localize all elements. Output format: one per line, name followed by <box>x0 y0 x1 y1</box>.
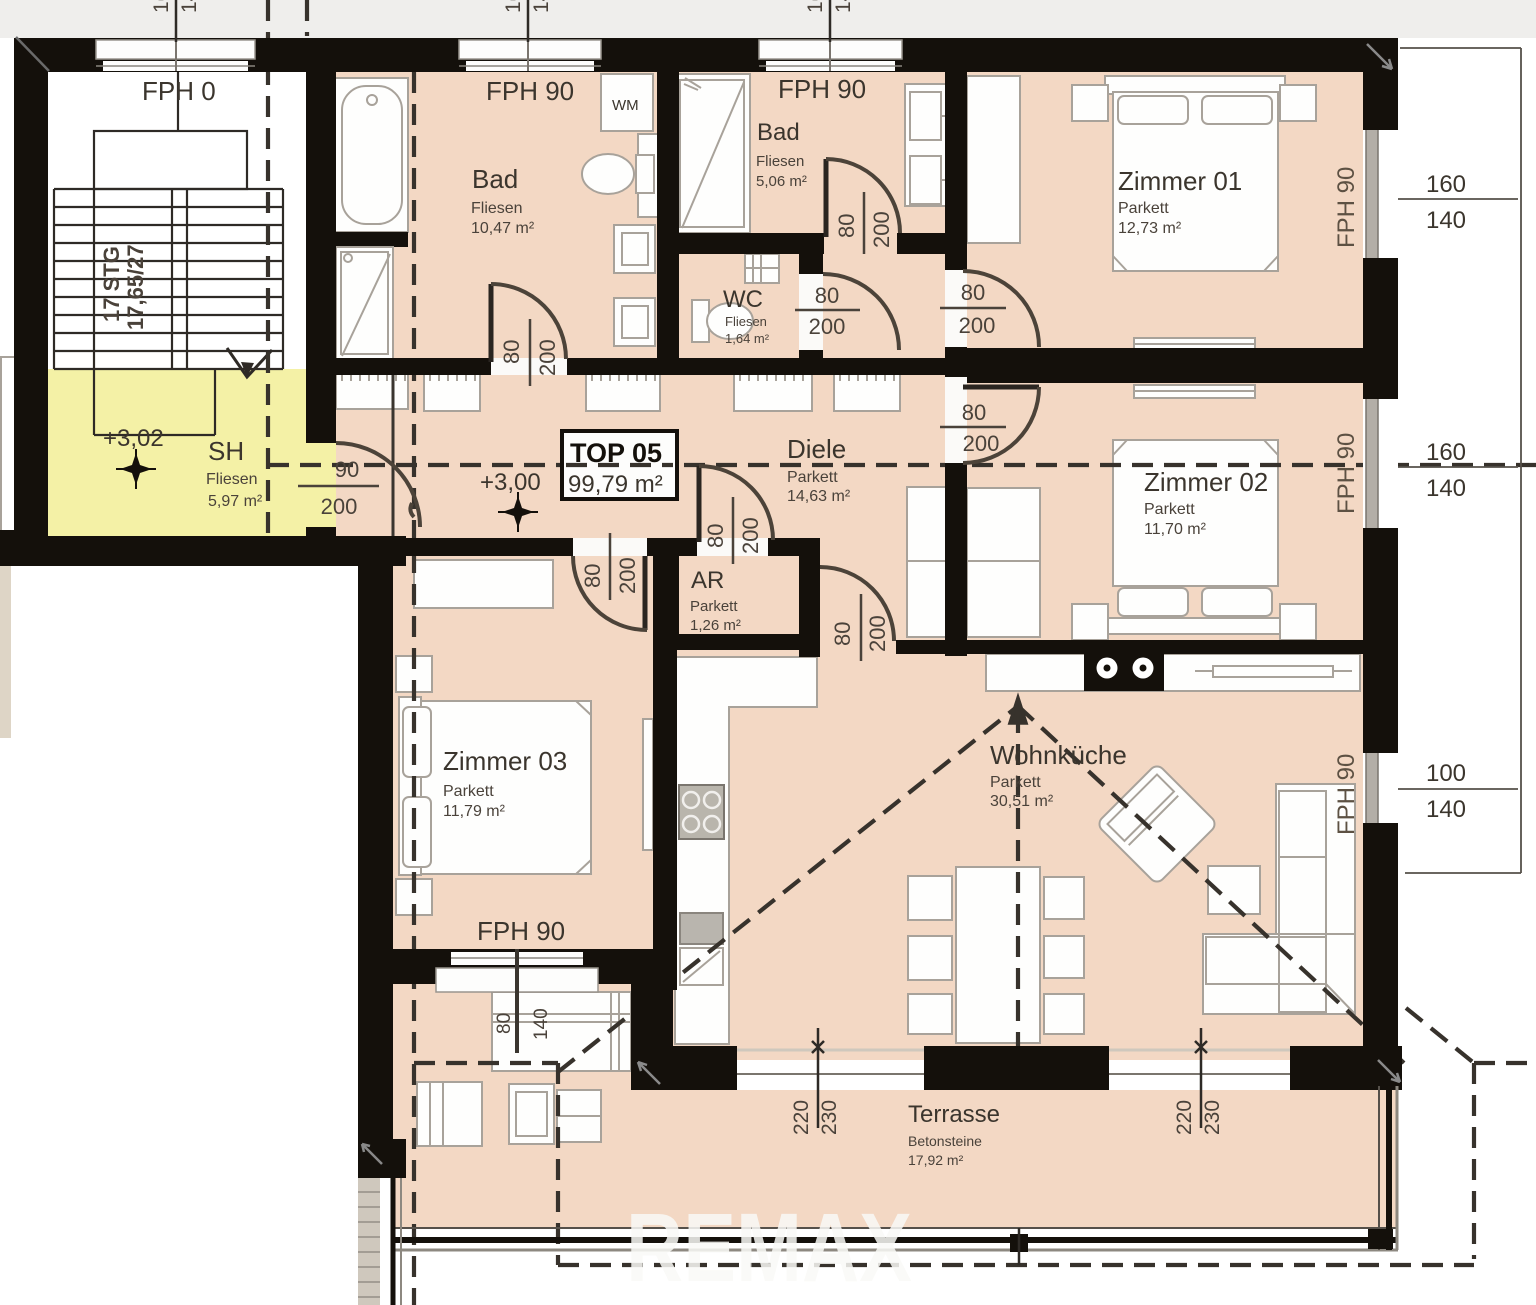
svg-text:Bad: Bad <box>472 164 518 194</box>
svg-text:17 STG: 17 STG <box>99 246 124 322</box>
svg-text:12,73 m²: 12,73 m² <box>1118 220 1182 237</box>
svg-text:80: 80 <box>494 1013 515 1034</box>
svg-text:Wohnküche: Wohnküche <box>990 740 1127 770</box>
svg-text:80: 80 <box>834 214 859 238</box>
svg-text:AR: AR <box>691 567 724 594</box>
svg-text:FPH 0: FPH 0 <box>142 76 216 106</box>
svg-text:Zimmer 03: Zimmer 03 <box>443 746 567 776</box>
svg-text:200: 200 <box>809 314 846 339</box>
svg-text:160: 160 <box>150 0 173 13</box>
svg-text:FPH 90: FPH 90 <box>1333 433 1360 514</box>
svg-text:Parkett: Parkett <box>1118 200 1169 217</box>
svg-text:17,92 m²: 17,92 m² <box>908 1152 964 1168</box>
svg-text:17,65/27: 17,65/27 <box>123 244 148 330</box>
svg-text:200: 200 <box>869 211 894 248</box>
svg-text:140: 140 <box>1426 207 1466 234</box>
svg-text:200: 200 <box>615 557 640 594</box>
svg-text:Parkett: Parkett <box>787 469 838 486</box>
svg-text:1,64 m²: 1,64 m² <box>725 331 770 346</box>
svg-text:100: 100 <box>1426 760 1466 787</box>
svg-text:140: 140 <box>530 0 553 13</box>
svg-text:200: 200 <box>535 339 560 376</box>
svg-text:160: 160 <box>1426 439 1466 466</box>
svg-text:230: 230 <box>818 1100 841 1135</box>
svg-text:FPH 90: FPH 90 <box>1333 754 1360 835</box>
svg-text:80: 80 <box>830 622 855 646</box>
svg-text:80: 80 <box>499 340 524 364</box>
svg-text:Fliesen: Fliesen <box>756 153 804 170</box>
svg-text:FPH 90: FPH 90 <box>477 916 565 946</box>
svg-text:FPH 90: FPH 90 <box>1333 167 1360 248</box>
svg-text:Parkett: Parkett <box>690 598 738 615</box>
svg-text:+3,02: +3,02 <box>103 425 164 452</box>
svg-text:1,26 m²: 1,26 m² <box>690 617 741 634</box>
svg-text:200: 200 <box>738 517 763 554</box>
svg-text:Fliesen: Fliesen <box>206 471 258 488</box>
svg-text:160: 160 <box>804 0 827 13</box>
svg-text:160: 160 <box>1426 171 1466 198</box>
svg-text:160: 160 <box>502 0 525 13</box>
svg-text:220: 220 <box>790 1100 813 1135</box>
svg-text:SH: SH <box>208 436 244 466</box>
svg-text:FPH 90: FPH 90 <box>486 76 574 106</box>
svg-text:90: 90 <box>335 457 359 482</box>
svg-text:WC: WC <box>723 286 763 313</box>
svg-text:Bad: Bad <box>757 119 800 146</box>
svg-text:Terrasse: Terrasse <box>908 1101 1000 1128</box>
svg-text:80: 80 <box>703 524 728 548</box>
svg-text:30,51 m²: 30,51 m² <box>990 793 1054 810</box>
svg-text:200: 200 <box>963 431 1000 456</box>
svg-text:Parkett: Parkett <box>990 774 1041 791</box>
svg-text:Diele: Diele <box>787 434 846 464</box>
svg-text:140: 140 <box>1426 475 1466 502</box>
svg-text:80: 80 <box>815 283 839 308</box>
svg-text:230: 230 <box>1201 1100 1224 1135</box>
svg-text:14,63 m²: 14,63 m² <box>787 488 851 505</box>
svg-text:140: 140 <box>1426 796 1466 823</box>
svg-text:99,79 m²: 99,79 m² <box>568 471 663 498</box>
svg-text:Fliesen: Fliesen <box>725 314 767 329</box>
svg-text:5,97 m²: 5,97 m² <box>208 493 263 510</box>
svg-text:Fliesen: Fliesen <box>471 200 523 217</box>
svg-text:TOP 05: TOP 05 <box>570 438 662 468</box>
svg-text:5,06 m²: 5,06 m² <box>756 173 807 190</box>
svg-text:Betonsteine: Betonsteine <box>908 1133 982 1149</box>
svg-text:140: 140 <box>178 0 201 13</box>
svg-text:10,47 m²: 10,47 m² <box>471 220 535 237</box>
svg-text:80: 80 <box>961 280 985 305</box>
svg-text:80: 80 <box>580 564 605 588</box>
svg-text:200: 200 <box>321 494 358 519</box>
svg-text:11,70 m²: 11,70 m² <box>1144 521 1207 538</box>
svg-text:140: 140 <box>531 1008 552 1040</box>
svg-text:Parkett: Parkett <box>1144 501 1195 518</box>
svg-text:80: 80 <box>962 400 986 425</box>
svg-text:140: 140 <box>832 0 855 13</box>
svg-text:REMAX: REMAX <box>626 1193 912 1302</box>
svg-text:200: 200 <box>959 313 996 338</box>
svg-text:11,79 m²: 11,79 m² <box>443 803 506 820</box>
svg-text:220: 220 <box>1173 1100 1196 1135</box>
svg-text:Parkett: Parkett <box>443 783 494 800</box>
svg-text:Zimmer 01: Zimmer 01 <box>1118 166 1242 196</box>
svg-text:200: 200 <box>865 615 890 652</box>
svg-text:+3,00: +3,00 <box>480 469 541 496</box>
svg-text:FPH 90: FPH 90 <box>778 74 866 104</box>
svg-text:WM: WM <box>612 97 639 114</box>
svg-text:Zimmer 02: Zimmer 02 <box>1144 467 1268 497</box>
